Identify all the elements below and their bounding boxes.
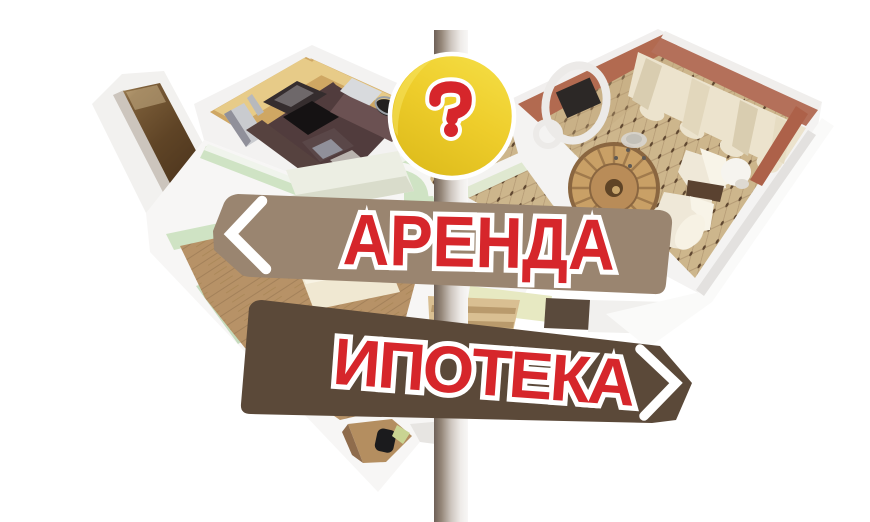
svg-text:АРЕНДА: АРЕНДА bbox=[342, 200, 616, 286]
